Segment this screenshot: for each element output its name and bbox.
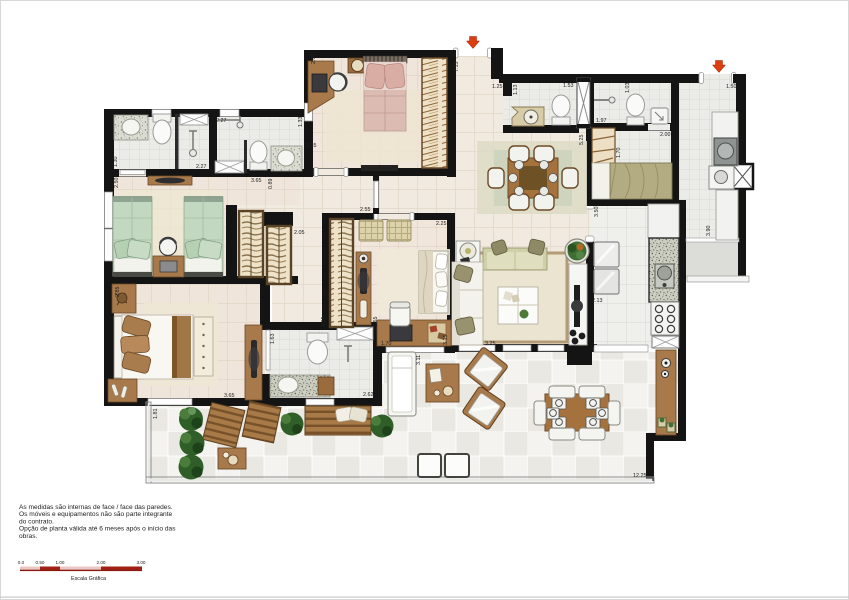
svg-text:2.62: 2.62 — [363, 392, 374, 398]
svg-text:2.05: 2.05 — [294, 230, 305, 236]
svg-text:3.35: 3.35 — [306, 143, 317, 149]
svg-text:3.00: 3.00 — [137, 560, 146, 565]
svg-text:do contrato.: do contrato. — [19, 518, 54, 525]
svg-text:12.25: 12.25 — [633, 473, 647, 479]
svg-text:3.50: 3.50 — [594, 207, 600, 218]
svg-text:3.90: 3.90 — [706, 226, 712, 237]
svg-text:1.33: 1.33 — [298, 117, 304, 128]
svg-text:1.13: 1.13 — [513, 85, 519, 96]
svg-text:0.50: 0.50 — [36, 560, 45, 565]
svg-text:1.81: 1.81 — [153, 409, 159, 420]
svg-text:2.27: 2.27 — [196, 164, 207, 170]
svg-text:2.50: 2.50 — [114, 178, 120, 189]
svg-text:3.15: 3.15 — [443, 335, 449, 346]
svg-text:2.85: 2.85 — [115, 287, 121, 298]
svg-text:1.25: 1.25 — [492, 84, 503, 90]
svg-text:2.65: 2.65 — [373, 317, 379, 328]
svg-text:3.65: 3.65 — [251, 178, 262, 184]
svg-text:2.00: 2.00 — [660, 132, 671, 138]
svg-text:0.0: 0.0 — [18, 560, 25, 565]
svg-text:0.89: 0.89 — [268, 179, 274, 190]
svg-text:5.25: 5.25 — [579, 135, 585, 146]
svg-text:1.53: 1.53 — [563, 83, 574, 89]
svg-text:3.25: 3.25 — [485, 341, 496, 347]
svg-text:1.30: 1.30 — [113, 157, 119, 168]
svg-text:As medidas são internas de fac: As medidas são internas de face / face d… — [19, 504, 173, 511]
svg-text:Escala Gráfica: Escala Gráfica — [71, 576, 106, 582]
svg-text:1.97: 1.97 — [596, 118, 607, 124]
svg-text:2.25: 2.25 — [436, 221, 447, 227]
svg-text:1.03: 1.03 — [625, 83, 631, 94]
svg-text:1.63: 1.63 — [270, 334, 276, 345]
svg-text:2.27: 2.27 — [216, 118, 227, 124]
svg-text:3.65: 3.65 — [224, 393, 235, 399]
svg-text:1.70: 1.70 — [616, 148, 622, 159]
svg-text:obras.: obras. — [19, 533, 37, 540]
svg-text:2.80: 2.80 — [311, 54, 317, 65]
svg-text:1.70: 1.70 — [381, 341, 392, 347]
svg-text:7.15: 7.15 — [454, 62, 460, 73]
svg-text:2.65: 2.65 — [321, 317, 327, 328]
svg-text:2.55: 2.55 — [360, 207, 371, 213]
svg-text:3.11: 3.11 — [416, 355, 422, 365]
svg-text:2.13: 2.13 — [592, 298, 603, 304]
svg-text:Opção de planta válida até 6 m: Opção de planta válida até 6 meses após … — [19, 526, 176, 533]
svg-text:1.50: 1.50 — [726, 84, 737, 90]
svg-text:Os móveis e equipamentos não s: Os móveis e equipamentos não são parte i… — [19, 511, 173, 518]
svg-text:1.00: 1.00 — [56, 560, 65, 565]
svg-text:2.00: 2.00 — [97, 560, 106, 565]
